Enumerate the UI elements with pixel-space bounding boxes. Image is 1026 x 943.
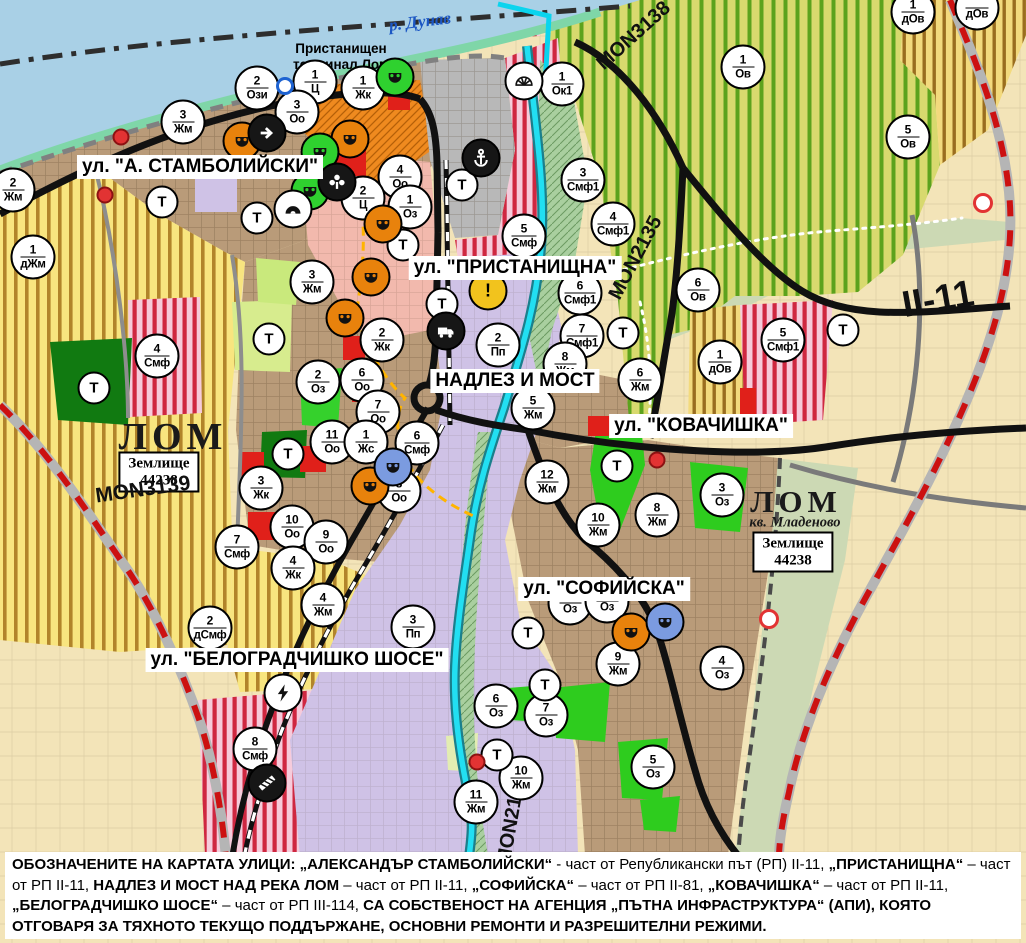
street-label-nadlez-i-most: НАДЛЕЗ И МОСТ — [430, 369, 599, 393]
monument-icon — [612, 613, 651, 652]
zone-marker-1-Ов: 1Ов — [721, 45, 766, 90]
transport-marker: Т — [253, 323, 286, 356]
zone-marker-дОв: дОв — [955, 0, 1000, 31]
zone-marker-5-Оз: 5Оз — [631, 745, 676, 790]
zone-marker-2-Ози: 2Ози — [235, 66, 280, 111]
zone-marker-5-Смф1: 5Смф1 — [761, 318, 806, 363]
zone-marker-4-Смф1: 4Смф1 — [591, 202, 636, 247]
legend-text-segment: – част от РП III-114, — [218, 897, 363, 914]
street-label-kovachishka: ул. "КОВАЧИШКА" — [609, 414, 793, 438]
zone-marker-3-Пп: 3Пп — [391, 605, 436, 650]
point-marker — [97, 187, 114, 204]
street-label-sofiyska: ул. "СОФИЙСКА" — [518, 577, 690, 601]
zone-marker-1-дОв: 1дОв — [698, 340, 743, 385]
mound-icon — [274, 190, 313, 229]
truck-icon — [427, 312, 466, 351]
street-label-stamboliyski: ул. "А. СТАМБОЛИЙСКИ" — [77, 155, 323, 179]
monument-icon — [364, 205, 403, 244]
legend-text-segment: – част от РП II-81, — [574, 877, 708, 894]
transport-marker: Т — [481, 739, 514, 772]
zoning-map-lom: р. Дунав Пристанищен терминал Лом кв. Мл… — [0, 0, 1026, 943]
legend-text-segment: – част от РП II-11, — [339, 877, 472, 894]
zone-marker-4-Смф: 4Смф — [135, 334, 180, 379]
zone-marker-4-Оз: 4Оз — [700, 646, 745, 691]
legend-text-segment: „БЕЛОГРАДЧИШКО ШОСЕ“ — [12, 897, 218, 914]
monument-icon — [374, 448, 413, 487]
zone-marker-2-дСмф: 2дСмф — [188, 606, 233, 651]
transport-marker: Т — [146, 186, 179, 219]
arrow-icon — [248, 114, 287, 153]
monument-icon — [376, 58, 415, 97]
legend-text-segment: НАДЛЕЗ И МОСТ НАД РЕКА ЛОМ — [93, 877, 339, 894]
legend-text-panel: ОБОЗНАЧЕНИТЕ НА КАРТАТА УЛИЦИ: „АЛЕКСАНД… — [5, 852, 1021, 939]
transport-marker: Т — [241, 202, 274, 235]
point-marker — [973, 193, 993, 213]
zone-marker-11-Жм: 11Жм — [454, 780, 499, 825]
street-label-belogradchishko-shose: ул. "БЕЛОГРАДЧИШКО ШОСЕ" — [146, 648, 449, 672]
zone-marker-6-Оз: 6Оз — [474, 684, 519, 729]
zone-marker-5-Ов: 5Ов — [886, 115, 931, 160]
zone-marker-1-дЖм: 1дЖм — [11, 235, 56, 280]
transport-marker: Т — [272, 438, 305, 471]
legend-text-segment: ОБОЗНАЧЕНИТЕ НА КАРТАТА УЛИЦИ: „АЛЕКСАНД… — [12, 856, 552, 873]
zone-marker-3-Жм: 3Жм — [161, 100, 206, 145]
zone-marker-2-Жк: 2Жк — [360, 318, 405, 363]
zone-marker-6-Ов: 6Ов — [676, 268, 721, 313]
point-marker — [469, 754, 486, 771]
point-marker — [113, 129, 130, 146]
monument-icon — [352, 258, 391, 297]
legend-text-segment: - част от Републикански път (РП) II-11, — [552, 856, 828, 873]
zone-marker-3-Оз: 3Оз — [700, 473, 745, 518]
zone-marker-4-Жм: 4Жм — [301, 583, 346, 628]
buoy-marker — [276, 77, 294, 95]
lightning-icon — [264, 674, 303, 713]
land-plot-box: Землище44238 — [752, 532, 833, 573]
zone-marker-6-Жм: 6Жм — [618, 358, 663, 403]
anchor-icon — [462, 139, 501, 178]
zone-marker-12-Жм: 12Жм — [525, 460, 570, 505]
zone-marker-7-Смф: 7Смф — [215, 525, 260, 570]
zone-marker-1-дОв: 1дОв — [891, 0, 936, 35]
city-label-lom-mladenovo: ЛОМ — [750, 484, 841, 520]
fountain-icon — [318, 163, 357, 202]
legend-text-segment: „СОФИЙСКА“ — [472, 877, 574, 894]
transport-marker: Т — [601, 450, 634, 483]
transport-marker: Т — [78, 372, 111, 405]
zone-marker-8-Жм: 8Жм — [635, 493, 680, 538]
zone-marker-3-Жк: 3Жк — [239, 466, 284, 511]
point-marker — [759, 609, 779, 629]
zone-marker-2-Пп: 2Пп — [476, 323, 521, 368]
point-marker — [649, 452, 666, 469]
transport-marker: Т — [529, 669, 562, 702]
legend-text-segment: „КОВАЧИШКА“ — [708, 877, 820, 894]
transport-marker: Т — [607, 317, 640, 350]
zone-marker-2-Жм: 2Жм — [0, 168, 36, 213]
railcrossing-icon — [248, 764, 287, 803]
zone-marker-3-Жм: 3Жм — [290, 260, 335, 305]
monument-icon — [646, 603, 685, 642]
dock-icon — [505, 62, 544, 101]
zone-marker-1-Ок1: 1Ок1 — [540, 62, 585, 107]
zone-marker-2-Оз: 2Оз — [296, 360, 341, 405]
zone-marker-10-Жм: 10Жм — [576, 503, 621, 548]
transport-marker: Т — [512, 617, 545, 650]
zone-marker-5-Смф: 5Смф — [502, 214, 547, 259]
zone-marker-4-Жк: 4Жк — [271, 546, 316, 591]
street-label-pristanishtna: ул. "ПРИСТАНИЩНА" — [409, 256, 622, 280]
zone-marker-3-Смф1: 3Смф1 — [561, 158, 606, 203]
monument-icon — [326, 299, 365, 338]
legend-text-segment: „ПРИСТАНИЩНА“ — [829, 856, 964, 873]
transport-marker: Т — [827, 314, 860, 347]
legend-text-segment: – част от РП II-11, — [820, 877, 948, 894]
